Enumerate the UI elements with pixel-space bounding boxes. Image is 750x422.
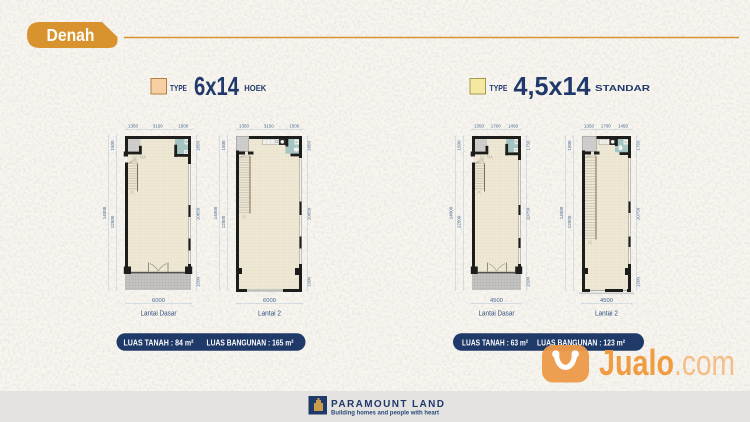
svg-text:6000: 6000 bbox=[263, 298, 276, 304]
svg-text:LUAS TANAH : 63 m²: LUAS TANAH : 63 m² bbox=[462, 338, 528, 348]
svg-text:12500: 12500 bbox=[221, 215, 226, 228]
svg-text:STANDAR: STANDAR bbox=[595, 83, 650, 93]
svg-text:1450: 1450 bbox=[618, 124, 629, 129]
svg-text:14000: 14000 bbox=[449, 206, 454, 219]
svg-text:Lantai 2: Lantai 2 bbox=[258, 311, 281, 318]
svg-text:1350: 1350 bbox=[474, 124, 485, 129]
svg-text:LUAS TANAH : 84 m²: LUAS TANAH : 84 m² bbox=[124, 338, 194, 348]
svg-text:3150: 3150 bbox=[264, 124, 275, 129]
svg-text:6000: 6000 bbox=[152, 298, 165, 304]
svg-text:4500: 4500 bbox=[490, 298, 503, 304]
svg-text:1500: 1500 bbox=[567, 140, 572, 151]
svg-text:Jualo: Jualo bbox=[599, 342, 674, 383]
svg-text:12500: 12500 bbox=[567, 215, 572, 228]
svg-text:1500: 1500 bbox=[457, 140, 462, 151]
svg-text:1450: 1450 bbox=[508, 124, 519, 129]
svg-text:4500: 4500 bbox=[600, 298, 613, 304]
svg-text:.com: .com bbox=[674, 342, 735, 383]
svg-text:6x14: 6x14 bbox=[194, 71, 239, 101]
svg-text:14000: 14000 bbox=[102, 206, 107, 219]
svg-text:1700: 1700 bbox=[601, 124, 612, 129]
svg-text:TYPE: TYPE bbox=[490, 83, 508, 93]
svg-text:LUAS BANGUNAN : 165 m²: LUAS BANGUNAN : 165 m² bbox=[207, 338, 294, 348]
svg-text:Lantai 2: Lantai 2 bbox=[595, 311, 618, 318]
svg-text:12500: 12500 bbox=[457, 215, 462, 228]
svg-text:1700: 1700 bbox=[491, 124, 502, 129]
svg-text:1500: 1500 bbox=[178, 124, 189, 129]
svg-text:1500: 1500 bbox=[289, 124, 300, 129]
svg-text:14000: 14000 bbox=[559, 206, 564, 219]
svg-text:1350: 1350 bbox=[128, 124, 139, 129]
svg-text:1350: 1350 bbox=[584, 124, 595, 129]
svg-text:1350: 1350 bbox=[239, 124, 250, 129]
svg-text:Building homes and people with: Building homes and people with heart bbox=[331, 410, 439, 417]
svg-text:12500: 12500 bbox=[110, 215, 115, 228]
svg-text:PARAMOUNT LAND: PARAMOUNT LAND bbox=[331, 399, 445, 410]
svg-text:3150: 3150 bbox=[153, 124, 164, 129]
svg-text:Lantai Dasar: Lantai Dasar bbox=[141, 311, 178, 318]
svg-text:14000: 14000 bbox=[213, 206, 218, 219]
svg-text:Lantai Dasar: Lantai Dasar bbox=[479, 311, 516, 318]
svg-text:TYPE: TYPE bbox=[170, 83, 187, 93]
svg-text:4,5x14: 4,5x14 bbox=[514, 71, 592, 101]
svg-text:1500: 1500 bbox=[221, 140, 226, 151]
svg-text:1500: 1500 bbox=[110, 140, 115, 151]
svg-text:Denah: Denah bbox=[47, 25, 95, 45]
svg-text:HOEK: HOEK bbox=[244, 83, 267, 93]
